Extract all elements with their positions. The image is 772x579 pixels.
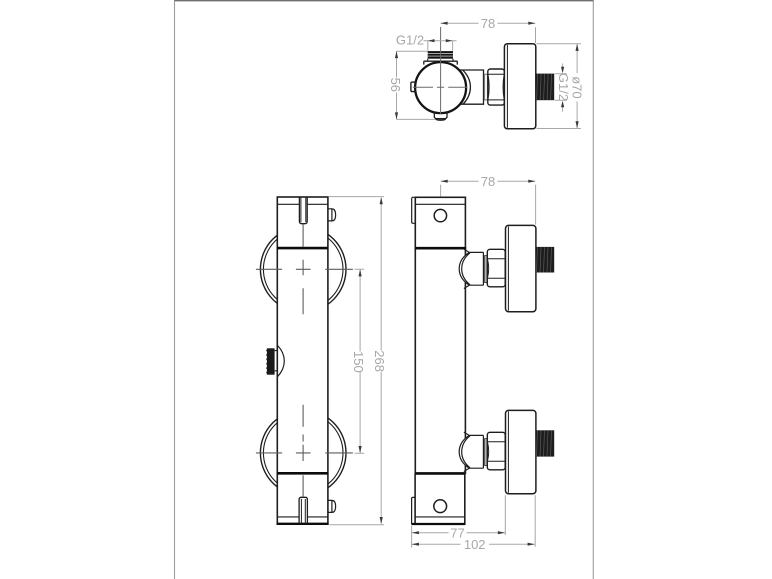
svg-text:150: 150 <box>351 351 366 373</box>
svg-text:G1/2: G1/2 <box>396 33 424 48</box>
svg-text:102: 102 <box>464 537 486 552</box>
svg-text:78: 78 <box>481 174 495 189</box>
svg-text:78: 78 <box>481 16 495 31</box>
svg-text:77: 77 <box>450 526 464 541</box>
svg-text:268: 268 <box>372 350 387 372</box>
svg-text:G1/2: G1/2 <box>556 73 571 101</box>
svg-text:56: 56 <box>388 78 403 92</box>
